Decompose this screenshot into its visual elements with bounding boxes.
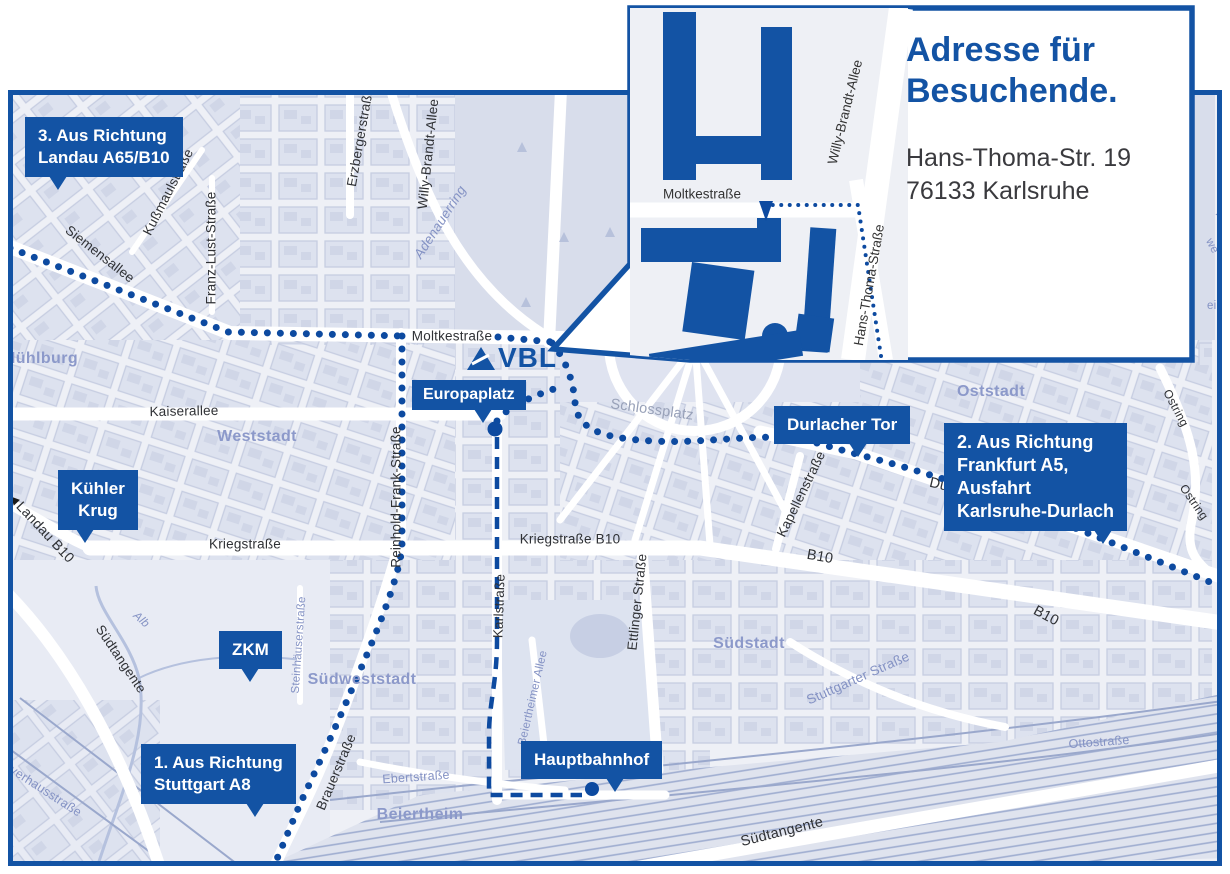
map-page: Siemensallee Kußmaulstraße Franz-Lust-St…: [0, 0, 1230, 874]
hauptbahnhof-dot: [585, 782, 599, 796]
europaplatz-dot: [488, 422, 503, 437]
address-inset-bubble: [553, 8, 1192, 380]
city-map-canvas: [0, 0, 1230, 874]
